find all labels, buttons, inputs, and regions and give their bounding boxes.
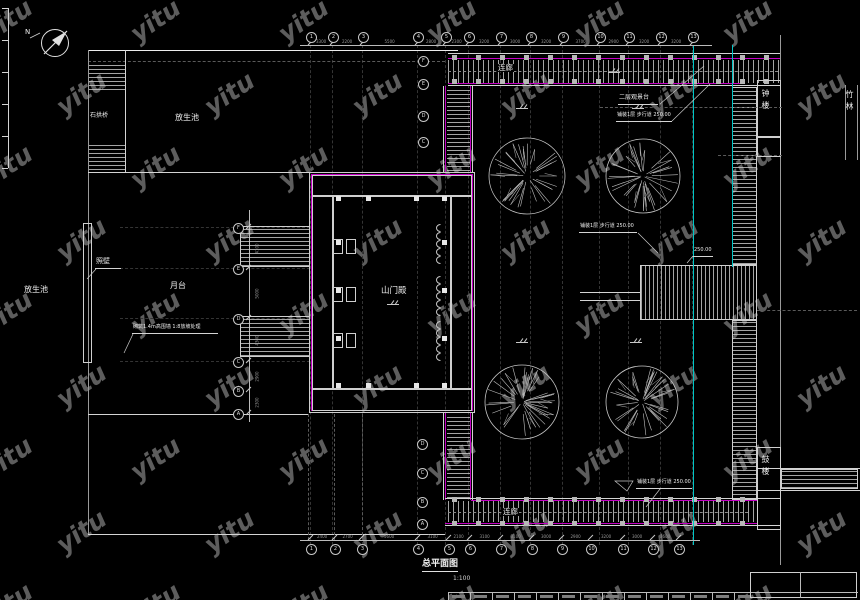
watermark-text: yitu — [495, 358, 556, 413]
paving-note-bottom-underline — [636, 488, 692, 489]
tree-branch — [524, 402, 552, 403]
corridor-label-top: 连廊 — [497, 64, 514, 72]
centerline — [757, 310, 857, 311]
border-ruler-tick — [2, 136, 8, 137]
bridge-edge-line — [125, 50, 126, 172]
corridor-column — [764, 55, 769, 60]
door-symbol — [346, 239, 356, 254]
corridor-column — [548, 521, 553, 526]
frame-line — [857, 85, 858, 160]
dimension-text: 2200 — [342, 39, 352, 44]
corridor-column — [452, 497, 457, 502]
roof-eave-hatch — [312, 389, 472, 411]
grid-bubble: 12 — [648, 544, 659, 555]
tree-branch — [661, 188, 667, 202]
title-block-box — [750, 572, 857, 598]
corridor-column — [452, 521, 457, 526]
title-block-text — [474, 595, 487, 598]
tree-branch — [511, 194, 520, 204]
tree-branch — [525, 405, 545, 424]
column-symbol — [336, 383, 341, 388]
title-block-divider — [558, 592, 559, 600]
grid-bubble: 10 — [586, 544, 597, 555]
moon-terrace-label: 月台 — [170, 282, 186, 290]
tree-branch — [503, 183, 520, 200]
corridor-column — [476, 521, 481, 526]
title-block-text — [540, 595, 553, 598]
title-block-divider — [448, 592, 449, 600]
dimension-text: 3100 — [511, 534, 521, 539]
corridor-column — [500, 79, 505, 84]
dimension-text: 5000 — [255, 288, 260, 298]
corridor-column — [572, 79, 577, 84]
watermark-text: yitu — [495, 212, 556, 267]
grid-bubble: B — [233, 386, 244, 397]
elevation-mark — [516, 342, 528, 343]
title-block-divider — [624, 592, 625, 600]
corridor-column — [500, 521, 505, 526]
column-symbol — [414, 383, 419, 388]
watermark-text: yitu — [51, 358, 112, 413]
grid-line — [308, 414, 309, 540]
connector-wall — [472, 412, 473, 500]
dimension-text: 3200 — [479, 39, 489, 44]
corridor-wall — [445, 525, 780, 526]
corridor-column — [740, 55, 745, 60]
watermark-text: yitu — [643, 212, 704, 267]
pond-label-top: 放生池 — [175, 114, 199, 122]
tree-branch — [511, 183, 523, 205]
mountain-gate-hall-label: 山门殿 — [381, 287, 407, 296]
dimension-text: 2600 — [660, 534, 670, 539]
grid-line — [120, 268, 310, 269]
title-block-text — [628, 595, 641, 598]
grid-bubble: D — [417, 439, 428, 450]
tree-branch — [644, 186, 646, 207]
connector-wall-magenta — [470, 86, 471, 173]
grid-bubble: 5 — [444, 544, 455, 555]
grid-bubble: E — [233, 264, 244, 275]
title-block-divider — [580, 592, 581, 600]
paving-note-mid: 铺装1层 步行道 250.00 — [580, 224, 634, 229]
watermark-text: yitu — [125, 139, 186, 194]
title-block-text — [694, 595, 707, 598]
screen-wall-label-underline — [95, 268, 121, 269]
tree-branch — [633, 372, 639, 393]
dimension-text: 2400 — [317, 534, 327, 539]
tree-branch — [618, 379, 636, 396]
tree-branch — [490, 175, 505, 177]
corridor-column — [452, 55, 457, 60]
tree-branch — [645, 181, 655, 210]
dimension-line — [300, 540, 700, 541]
north-arrow-icon — [42, 30, 69, 57]
corridor-centerline — [448, 512, 748, 513]
tree-branch — [618, 379, 626, 390]
corridor-column — [620, 55, 625, 60]
watermark-text: yitu — [791, 504, 852, 559]
column-symbol — [366, 196, 371, 201]
grid-bubble: 11 — [618, 544, 629, 555]
title-block-divider — [690, 592, 691, 600]
north-arrow-icon — [52, 31, 67, 46]
grid-bubble: 2 — [328, 32, 339, 43]
title-block-text — [606, 595, 619, 598]
column-symbol — [442, 336, 447, 341]
grid-line — [628, 45, 629, 545]
tree-branch — [643, 197, 644, 211]
corridor-column — [716, 497, 721, 502]
grid-bubble: A — [417, 519, 428, 530]
grid-bubble: 1 — [306, 544, 317, 555]
tree-branch — [539, 182, 553, 189]
tree-branch — [524, 403, 550, 418]
grid-bubble: F — [418, 56, 429, 67]
dimension-text: 3300 — [316, 39, 326, 44]
title-block-divider — [536, 592, 537, 600]
elevation-mark — [516, 108, 528, 109]
corridor-column — [644, 55, 649, 60]
elev-note-mid-underline — [693, 256, 713, 257]
tree-branch — [536, 153, 555, 168]
column-symbol — [442, 383, 447, 388]
tree-branch — [630, 144, 633, 158]
grid-bubble: 13 — [674, 544, 685, 555]
corridor-wall-magenta — [445, 523, 757, 524]
tree-branch — [505, 180, 523, 201]
grid-bubble: 5 — [441, 32, 452, 43]
watermark-text: yitu — [125, 285, 186, 340]
door-symbol — [346, 287, 356, 302]
tree-branch — [624, 421, 635, 431]
dimension-text: 3700 — [576, 39, 586, 44]
door-symbol — [333, 333, 343, 348]
tree-branch — [513, 144, 523, 168]
dimension-text: 3200 — [541, 39, 551, 44]
tree-branch — [624, 410, 637, 431]
corridor-column — [620, 79, 625, 84]
corridor-column — [620, 521, 625, 526]
paving-note-bottom: 铺装1层 步行道 250.00 — [637, 480, 691, 485]
watermark-text: yitu — [199, 358, 260, 413]
tree-branch — [535, 185, 550, 203]
bridge-steps-hatch — [89, 63, 125, 90]
tree-branch — [612, 177, 639, 187]
title-block-text — [496, 595, 509, 598]
dimension-text: 3100 — [480, 534, 490, 539]
border-ruler-tick — [2, 104, 8, 105]
corridor-column — [476, 79, 481, 84]
terrace-wall — [88, 414, 308, 415]
tree-branch — [635, 183, 641, 202]
watermark-text: yitu — [347, 504, 408, 559]
corridor-column — [500, 497, 505, 502]
dimension-text: 2800 — [426, 39, 436, 44]
grid-bubble: 7 — [496, 544, 507, 555]
watermark-text: yitu — [791, 66, 852, 121]
door-symbol — [346, 333, 356, 348]
tree-branch — [536, 160, 557, 171]
deck-note: 二层观景台 — [619, 95, 649, 101]
corridor-column — [548, 497, 553, 502]
connector-wall — [443, 86, 444, 173]
east-corridor-hatch — [732, 320, 757, 500]
grid-bubble: 8 — [527, 544, 538, 555]
tree-branch — [610, 392, 634, 399]
drum-tower-label: 鼓楼 — [761, 455, 769, 479]
corridor-column — [716, 521, 721, 526]
border-ruler-tick — [2, 168, 8, 169]
door-symbol — [333, 287, 343, 302]
tree-branch — [539, 414, 554, 415]
corridor-column — [596, 55, 601, 60]
dimension-text: 3200 — [601, 534, 611, 539]
tree-branch — [616, 405, 627, 407]
tree-branch — [645, 177, 672, 191]
corridor-column — [500, 55, 505, 60]
tree-branch — [533, 156, 557, 172]
leader-line — [124, 334, 133, 353]
corridor-wall — [445, 498, 780, 499]
grid-bubble: 3 — [357, 544, 368, 555]
roof-eave-hatch — [312, 175, 472, 196]
corridor-column — [596, 521, 601, 526]
dimension-text: 3000 — [510, 39, 520, 44]
watermark-text: yitu — [643, 358, 704, 413]
tree-branch — [520, 182, 525, 206]
watermark-text: yitu — [569, 577, 630, 600]
corridor-column — [644, 497, 649, 502]
corridor-column — [668, 55, 673, 60]
bell-tower-anteroom — [757, 137, 781, 157]
corridor-column — [620, 497, 625, 502]
paving-note-mid-underline — [579, 232, 637, 233]
tree-branch — [495, 159, 516, 170]
tree-branch — [644, 182, 647, 211]
roof-eave-hatch — [451, 196, 472, 389]
connector-hatch — [447, 414, 470, 498]
corridor-column — [524, 79, 529, 84]
corridor-column — [596, 79, 601, 84]
watermark-text: yitu — [125, 0, 186, 48]
east-link-wall — [580, 292, 640, 293]
border-ruler-tick — [2, 72, 8, 73]
tree-branch — [652, 175, 678, 176]
corridor-column — [572, 55, 577, 60]
border-ruler-line — [8, 8, 9, 168]
grid-bubble: 4 — [413, 32, 424, 43]
paving-note-top-underline — [616, 121, 672, 122]
north-letter: N — [25, 29, 30, 36]
grid-bubble: D — [418, 111, 429, 122]
tree-branch — [645, 192, 650, 202]
tree-branch — [633, 377, 638, 391]
tree-branch — [541, 394, 554, 398]
title-block-divider — [602, 592, 603, 600]
centerline — [600, 107, 782, 108]
tree-branch — [625, 410, 637, 432]
title-block-divider — [800, 572, 801, 598]
watermark-text: yitu — [125, 431, 186, 486]
tree-branch — [631, 151, 641, 172]
elevation-mark — [387, 304, 399, 305]
dimension-text: 4300 — [255, 335, 260, 345]
grid-bubble: 4 — [413, 544, 424, 555]
corridor-column — [716, 55, 721, 60]
grid-bubble: 10 — [595, 32, 606, 43]
grid-bubble: 7 — [496, 32, 507, 43]
title-block-text — [584, 595, 597, 598]
tree-branch — [490, 175, 517, 176]
grid-bubble: 6 — [465, 544, 476, 555]
grid-line — [120, 361, 310, 362]
door-symbol — [333, 239, 343, 254]
dimension-text: 2900 — [255, 371, 260, 381]
grid-bubble: C — [417, 468, 428, 479]
grid-bubble: 9 — [557, 544, 568, 555]
paving-note-top: 铺装1层 步行道 250.00 — [617, 113, 671, 118]
corridor-column — [716, 79, 721, 84]
grid-bubble: 13 — [688, 32, 699, 43]
grid-bubble: C — [233, 357, 244, 368]
title-block-text — [452, 595, 465, 598]
grid-bubble: C — [418, 137, 429, 148]
tree-branch — [529, 401, 555, 402]
corridor-column — [476, 55, 481, 60]
watermark-text: yitu — [125, 577, 186, 600]
tree-branch — [647, 160, 672, 174]
connector-wall — [472, 86, 473, 173]
corridor-column — [644, 79, 649, 84]
centerline — [88, 61, 445, 62]
tree-branch — [506, 153, 525, 174]
grid-line — [599, 45, 600, 545]
corridor-column — [740, 497, 745, 502]
watermark-text: yitu — [0, 577, 38, 600]
tree-branch — [542, 163, 552, 168]
tree-branch — [504, 413, 509, 425]
corridor-wall-magenta — [448, 58, 780, 59]
slope-flag-symbol — [615, 481, 633, 491]
border-ruler-tick — [2, 40, 8, 41]
tree-branch — [630, 144, 642, 172]
tree-branch — [642, 150, 645, 160]
east-link-wall — [580, 300, 640, 301]
centerline — [718, 155, 782, 156]
title-block-divider — [646, 592, 647, 600]
watermark-text: yitu — [791, 212, 852, 267]
tree-branch — [531, 187, 536, 201]
corridor-column — [740, 521, 745, 526]
connector-wall-magenta — [445, 86, 446, 173]
grid-line — [530, 45, 531, 545]
grid-bubble: F — [233, 223, 244, 234]
pond-north-wall — [88, 50, 458, 51]
dimension-text: 5500 — [385, 39, 395, 44]
corridor-column — [596, 497, 601, 502]
dimension-text: 3200 — [671, 39, 681, 44]
watermark-text: yitu — [273, 577, 334, 600]
grid-bubble: 2 — [330, 544, 341, 555]
tree-branch — [643, 413, 646, 435]
tree-branch — [646, 177, 678, 184]
watermark-text: yitu — [791, 358, 852, 413]
tree-branch — [538, 403, 548, 409]
tree-branch — [540, 399, 552, 403]
tree-branch — [502, 193, 513, 202]
elevation-mark — [632, 108, 644, 109]
grid-bubble: E — [418, 79, 429, 90]
grid-line — [334, 414, 335, 540]
tree-branch — [537, 163, 552, 171]
grid-bubble: 3 — [358, 32, 369, 43]
tree-branch — [498, 164, 520, 173]
corridor-column — [524, 497, 529, 502]
tree-branch — [545, 173, 557, 176]
watermark-text: yitu — [199, 504, 260, 559]
grid-bubble: A — [233, 409, 244, 420]
tree-branch — [506, 153, 515, 162]
tree-branch — [534, 149, 535, 161]
screen-wall-label: 照壁 — [96, 258, 110, 265]
watermark-text: yitu — [0, 431, 38, 486]
north-arrow-icon — [44, 31, 67, 54]
grid-bubble: B — [417, 497, 428, 508]
watermark-text: yitu — [347, 66, 408, 121]
grid-bubble: 11 — [624, 32, 635, 43]
cyan-reference-line — [732, 45, 733, 267]
dimension-text: 3000 — [541, 534, 551, 539]
dimension-text: 5600 — [384, 534, 394, 539]
elevation-mark — [630, 342, 642, 343]
title-block-divider — [668, 592, 669, 600]
dimension-text: 2900 — [571, 534, 581, 539]
tree-branch — [525, 403, 548, 408]
column-symbol — [442, 288, 447, 293]
watermark-text: yitu — [717, 0, 778, 48]
tree-branch — [530, 180, 545, 201]
dimension-text: 4100 — [255, 243, 260, 253]
west-steps-hatch — [240, 316, 310, 357]
title-block-divider — [470, 592, 471, 600]
elev-note-mid: 250.00 — [694, 248, 712, 253]
grid-line — [362, 414, 363, 540]
wall-note-underline — [132, 333, 218, 334]
screen-wall — [83, 223, 92, 363]
corridor-column — [572, 497, 577, 502]
east-steps-hatch — [640, 265, 757, 320]
tree-branch — [635, 180, 642, 207]
corridor-column — [548, 79, 553, 84]
bamboo-grove-label: 竹林 — [845, 90, 853, 114]
grid-bubble: 8 — [526, 32, 537, 43]
corridor-wall — [448, 53, 780, 54]
watermark-text: yitu — [0, 139, 38, 194]
corridor-wall — [448, 85, 780, 86]
tree-branch — [523, 146, 526, 168]
bell-tower-label: 钟楼 — [761, 89, 769, 113]
title-block-text — [562, 595, 575, 598]
connector-wall — [443, 412, 444, 500]
tree-branch — [633, 377, 635, 388]
corridor-column — [524, 521, 529, 526]
tree-branch — [523, 149, 525, 164]
connector-hatch — [447, 88, 470, 171]
tree-branch — [536, 179, 557, 186]
dimension-text: 3100 — [428, 534, 438, 539]
dimension-line — [300, 45, 712, 46]
corridor-column — [548, 55, 553, 60]
